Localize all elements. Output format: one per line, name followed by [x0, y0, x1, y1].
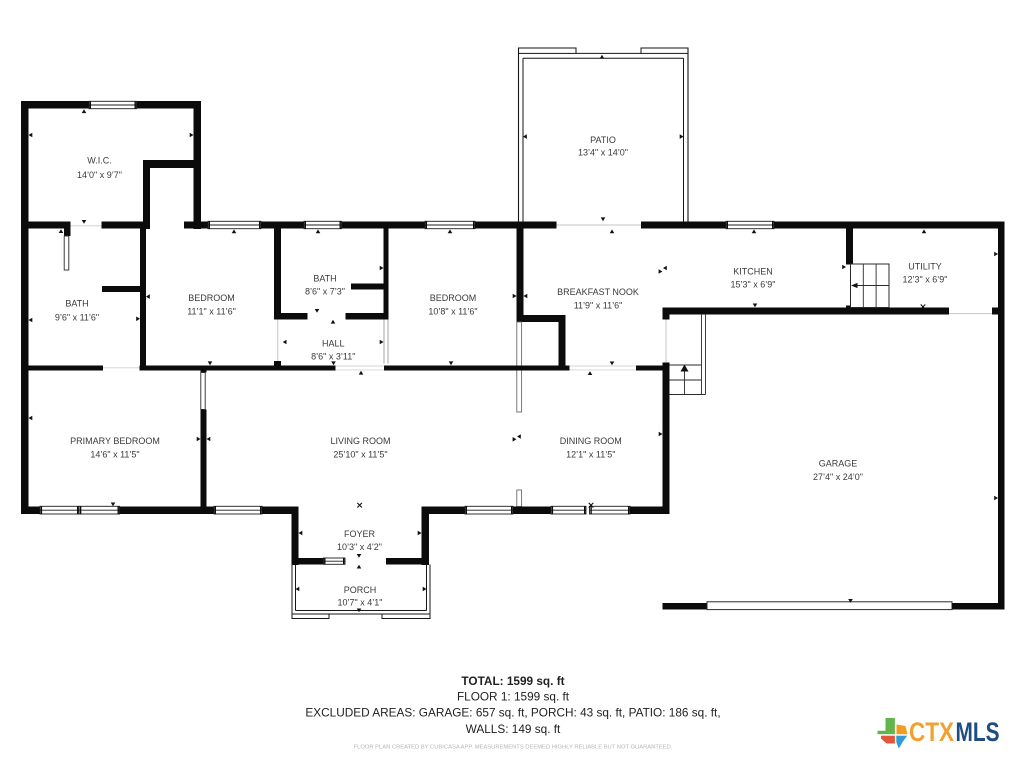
svg-text:PATIO: PATIO	[590, 135, 616, 145]
svg-text:PORCH: PORCH	[344, 585, 377, 595]
svg-text:FLOOR 1: 1599 sq. ft: FLOOR 1: 1599 sq. ft	[457, 690, 570, 704]
svg-text:15’3" x 6’9": 15’3" x 6’9"	[731, 279, 776, 289]
svg-text:BATH: BATH	[65, 299, 88, 309]
svg-text:UTILITY: UTILITY	[908, 262, 942, 272]
svg-text:10’7" x 4’1": 10’7" x 4’1"	[338, 598, 383, 608]
svg-text:TOTAL: 1599 sq. ft: TOTAL: 1599 sq. ft	[461, 674, 564, 688]
svg-text:25’10" x 11’5": 25’10" x 11’5"	[333, 450, 387, 460]
svg-text:13’4" x 14’0": 13’4" x 14’0"	[578, 148, 628, 158]
svg-text:11’9" x 11’6": 11’9" x 11’6"	[574, 301, 623, 311]
svg-text:BREAKFAST NOOK: BREAKFAST NOOK	[557, 287, 639, 297]
svg-text:10’8" x 11’6": 10’8" x 11’6"	[428, 307, 477, 317]
svg-text:12’3" x 6’9": 12’3" x 6’9"	[903, 275, 948, 285]
svg-text:HALL: HALL	[322, 339, 345, 349]
svg-text:27’4" x 24’0": 27’4" x 24’0"	[813, 472, 863, 482]
svg-text:8’6" x 3’11": 8’6" x 3’11"	[311, 352, 355, 362]
svg-text:WALLS: 149 sq. ft: WALLS: 149 sq. ft	[466, 722, 561, 736]
svg-text:9’6" x 11’6": 9’6" x 11’6"	[55, 313, 99, 323]
svg-text:BEDROOM: BEDROOM	[188, 293, 235, 303]
svg-text:14’6" x 11’5": 14’6" x 11’5"	[90, 450, 139, 460]
svg-text:10’3" x 4’2": 10’3" x 4’2"	[337, 542, 382, 552]
svg-text:CTX: CTX	[909, 717, 954, 747]
svg-text:EXCLUDED AREAS: GARAGE: 657 sq: EXCLUDED AREAS: GARAGE: 657 sq. ft, PORC…	[305, 706, 720, 720]
svg-text:W.I.C.: W.I.C.	[87, 156, 112, 166]
svg-text:14’0" x 9’7": 14’0" x 9’7"	[77, 170, 122, 180]
svg-text:LIVING ROOM: LIVING ROOM	[330, 436, 390, 446]
svg-text:MLS: MLS	[956, 717, 1000, 747]
svg-text:FLOOR PLAN CREATED BY CUBICASA: FLOOR PLAN CREATED BY CUBICASA APP. MEAS…	[354, 745, 673, 751]
svg-text:BEDROOM: BEDROOM	[430, 293, 477, 303]
svg-text:DINING ROOM: DINING ROOM	[560, 436, 622, 446]
svg-text:11’1" x 11’6": 11’1" x 11’6"	[187, 307, 236, 317]
svg-text:BATH: BATH	[313, 273, 336, 283]
svg-text:KITCHEN: KITCHEN	[733, 266, 773, 276]
svg-text:FOYER: FOYER	[344, 529, 376, 539]
svg-text:PRIMARY BEDROOM: PRIMARY BEDROOM	[70, 436, 160, 446]
svg-text:12’1" x 11’5": 12’1" x 11’5"	[566, 450, 615, 460]
svg-text:GARAGE: GARAGE	[819, 459, 858, 469]
svg-text:8’6" x 7’3": 8’6" x 7’3"	[305, 287, 345, 297]
